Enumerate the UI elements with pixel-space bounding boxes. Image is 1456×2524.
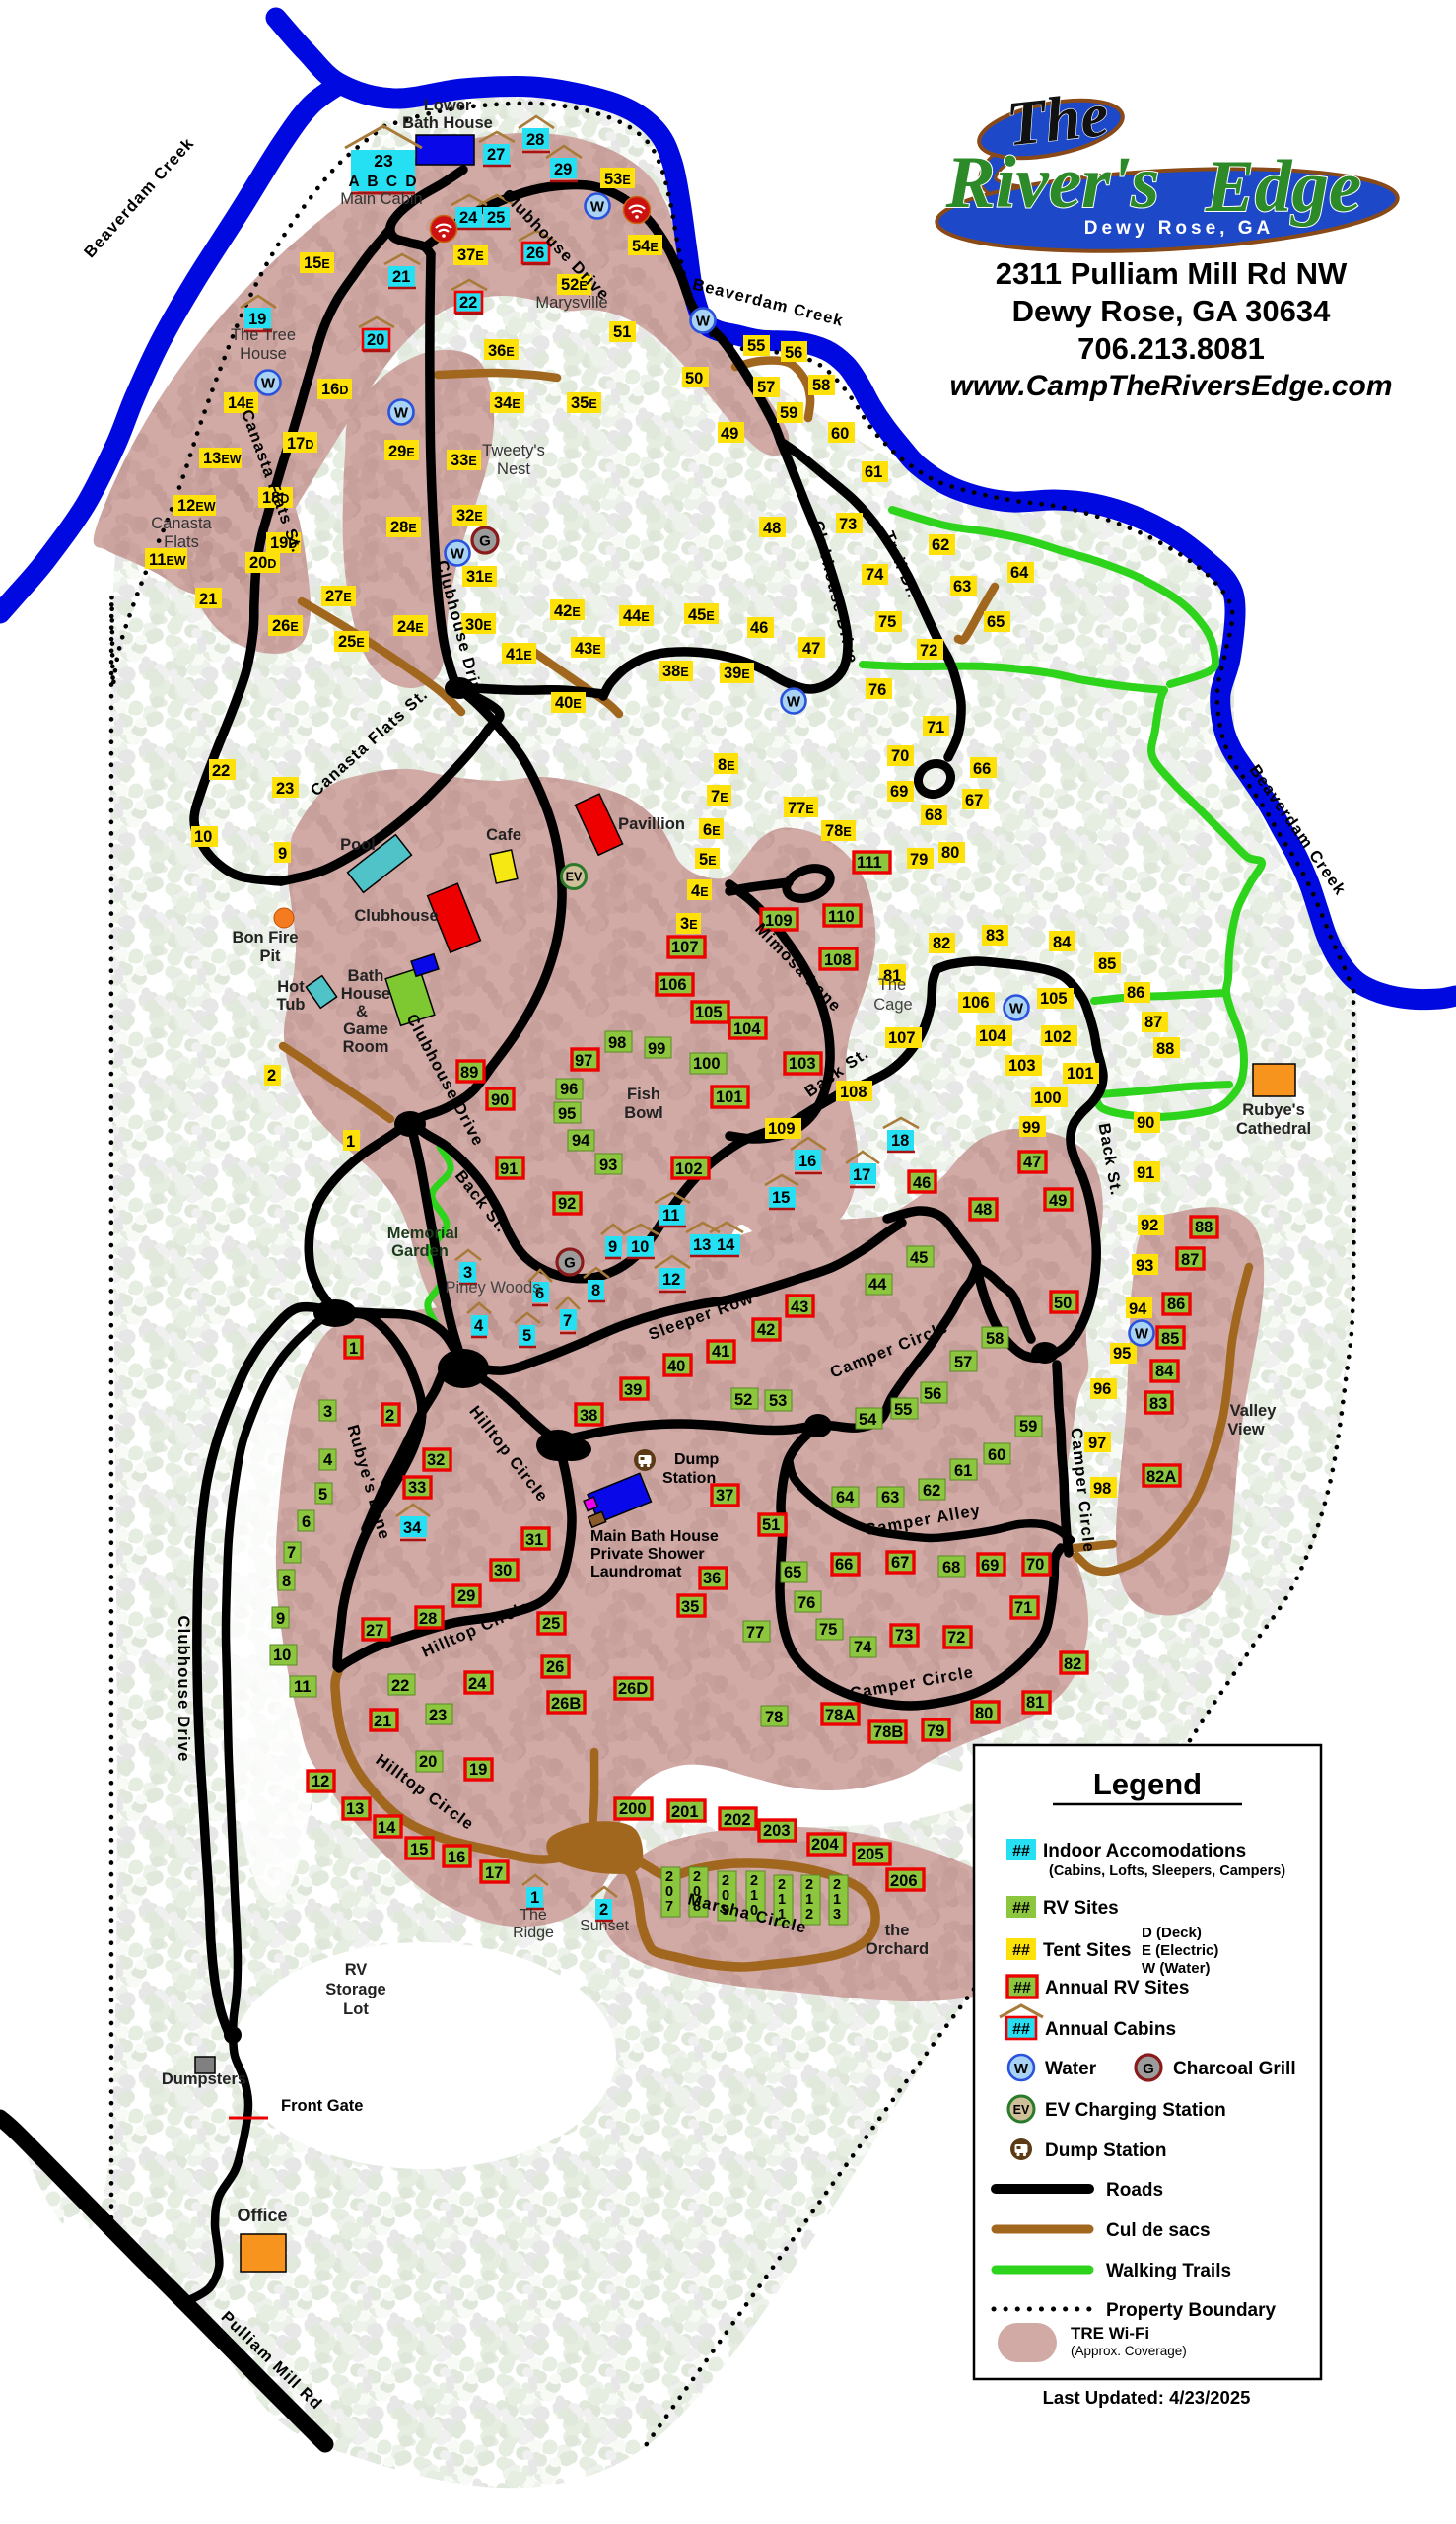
svg-text:66: 66 — [835, 1556, 853, 1574]
svg-text:44: 44 — [868, 1276, 887, 1294]
svg-text:60: 60 — [988, 1446, 1005, 1464]
svg-text:15: 15 — [410, 1841, 428, 1858]
svg-text:72: 72 — [920, 642, 937, 660]
svg-text:Ridge: Ridge — [513, 1925, 554, 1941]
svg-text:81: 81 — [1026, 1694, 1044, 1712]
svg-text:W: W — [787, 694, 801, 711]
svg-text:30: 30 — [494, 1562, 512, 1579]
svg-text:Pavillion: Pavillion — [618, 815, 685, 833]
svg-text:74: 74 — [854, 1639, 872, 1656]
svg-text:16D: 16D — [321, 381, 348, 398]
svg-text:5: 5 — [318, 1486, 327, 1504]
svg-text:G: G — [564, 1255, 576, 1272]
svg-text:92: 92 — [1141, 1217, 1158, 1234]
svg-text:47: 47 — [802, 640, 820, 658]
svg-text:Charcoal Grill: Charcoal Grill — [1173, 2059, 1296, 2079]
svg-text:2: 2 — [833, 1877, 841, 1893]
svg-text:40: 40 — [667, 1358, 685, 1375]
svg-text:12: 12 — [312, 1773, 329, 1790]
svg-text:11: 11 — [662, 1207, 679, 1225]
svg-text:73: 73 — [839, 516, 857, 533]
svg-text:108: 108 — [824, 951, 852, 969]
svg-text:200: 200 — [619, 1800, 647, 1818]
svg-text:2: 2 — [385, 1407, 394, 1425]
svg-text:20: 20 — [367, 331, 384, 349]
svg-text:102: 102 — [1044, 1028, 1072, 1046]
svg-text:202: 202 — [724, 1811, 751, 1829]
svg-text:82: 82 — [933, 935, 950, 952]
svg-text:2: 2 — [665, 1869, 673, 1885]
svg-text:Bath House: Bath House — [402, 114, 493, 132]
svg-text:44E: 44E — [623, 607, 650, 625]
svg-text:32E: 32E — [456, 507, 483, 525]
svg-text:67: 67 — [965, 792, 983, 809]
svg-text:23: 23 — [429, 1707, 447, 1724]
svg-text:102: 102 — [675, 1160, 703, 1178]
svg-text:68: 68 — [925, 806, 942, 824]
svg-text:71: 71 — [927, 719, 944, 736]
svg-text:2311 Pulliam Mill Rd NW: 2311 Pulliam Mill Rd NW — [996, 256, 1348, 291]
svg-text:85: 85 — [1161, 1330, 1179, 1348]
svg-text:54: 54 — [859, 1411, 877, 1429]
svg-text:G: G — [479, 533, 491, 550]
svg-text:105: 105 — [1040, 990, 1068, 1008]
svg-text:Dump: Dump — [674, 1451, 720, 1468]
svg-text:1: 1 — [349, 1340, 358, 1358]
svg-text:7E: 7E — [711, 788, 728, 806]
svg-text:27E: 27E — [325, 588, 352, 605]
svg-text:26: 26 — [546, 1658, 564, 1676]
svg-text:32: 32 — [427, 1451, 445, 1469]
svg-text:##: ## — [1012, 1900, 1030, 1917]
svg-text:View: View — [1227, 1421, 1264, 1438]
svg-text:23: 23 — [374, 151, 393, 171]
svg-text:Nest: Nest — [497, 460, 530, 478]
svg-text:87: 87 — [1181, 1251, 1199, 1269]
svg-text:54E: 54E — [632, 238, 659, 255]
svg-text:84: 84 — [1155, 1363, 1174, 1380]
svg-text:Game: Game — [343, 1020, 388, 1038]
svg-text:34E: 34E — [494, 394, 520, 412]
svg-text:62: 62 — [932, 536, 949, 554]
svg-text:89: 89 — [460, 1064, 478, 1082]
svg-text:70: 70 — [1026, 1556, 1044, 1574]
svg-text:82A: 82A — [1146, 1468, 1176, 1486]
svg-text:Lower: Lower — [424, 97, 472, 114]
svg-text:##: ## — [1012, 1942, 1030, 1959]
svg-text:15E: 15E — [304, 254, 330, 272]
svg-text:57: 57 — [757, 379, 775, 396]
svg-text:18: 18 — [891, 1132, 909, 1150]
svg-text:98: 98 — [1093, 1480, 1111, 1498]
svg-text:33: 33 — [408, 1479, 426, 1497]
svg-text:78: 78 — [765, 1709, 783, 1726]
svg-text:House: House — [341, 985, 390, 1003]
svg-text:96: 96 — [560, 1081, 578, 1098]
svg-text:73: 73 — [895, 1627, 913, 1645]
svg-text:108: 108 — [840, 1084, 867, 1101]
svg-text:12: 12 — [662, 1271, 680, 1289]
svg-text:Laundromat: Laundromat — [590, 1564, 682, 1580]
svg-text:82: 82 — [1064, 1655, 1081, 1673]
svg-text:Memorial: Memorial — [387, 1225, 458, 1242]
svg-text:Main Bath House: Main Bath House — [590, 1528, 719, 1545]
svg-text:Piney Woods: Piney Woods — [446, 1279, 541, 1297]
svg-text:21: 21 — [374, 1713, 391, 1730]
svg-text:45: 45 — [910, 1249, 928, 1267]
svg-text:66: 66 — [973, 760, 991, 778]
svg-text:41E: 41E — [506, 646, 532, 664]
svg-text:56: 56 — [785, 344, 802, 362]
svg-text:26D: 26D — [618, 1680, 648, 1698]
svg-text:26E: 26E — [272, 617, 299, 635]
svg-text:2: 2 — [267, 1067, 276, 1085]
svg-text:39E: 39E — [724, 665, 750, 682]
svg-text:21: 21 — [392, 268, 410, 286]
svg-text:Cul de sacs: Cul de sacs — [1106, 2220, 1211, 2241]
svg-text:64: 64 — [1010, 564, 1029, 582]
svg-text:&: & — [356, 1003, 368, 1020]
svg-text:W: W — [394, 405, 409, 422]
svg-text:28: 28 — [419, 1610, 437, 1628]
svg-text:61: 61 — [865, 463, 882, 481]
svg-text:D (Deck): D (Deck) — [1142, 1925, 1202, 1941]
svg-text:74: 74 — [866, 566, 884, 584]
svg-text:79: 79 — [927, 1722, 944, 1740]
svg-text:46: 46 — [750, 619, 768, 637]
svg-text:Office: Office — [237, 2206, 287, 2225]
svg-text:W: W — [1009, 1001, 1024, 1017]
svg-text:36E: 36E — [488, 342, 515, 360]
svg-text:Last Updated: 4/23/2025: Last Updated: 4/23/2025 — [1043, 2387, 1251, 2408]
svg-text:68: 68 — [942, 1559, 960, 1577]
svg-text:Rubye's: Rubye's — [1242, 1101, 1305, 1119]
svg-text:67: 67 — [891, 1554, 909, 1572]
svg-text:Dumpsters: Dumpsters — [162, 2070, 246, 2088]
svg-text:Bowl: Bowl — [624, 1104, 662, 1122]
svg-text:Annual Cabins: Annual Cabins — [1045, 2019, 1176, 2040]
svg-text:0: 0 — [665, 1884, 673, 1900]
svg-text:The Tree: The Tree — [231, 326, 296, 344]
svg-text:49: 49 — [1049, 1192, 1067, 1210]
svg-text:14: 14 — [717, 1236, 735, 1254]
svg-text:100: 100 — [1034, 1089, 1062, 1107]
svg-text:25: 25 — [542, 1615, 560, 1633]
svg-text:3E: 3E — [680, 915, 698, 933]
svg-text:1: 1 — [750, 1888, 758, 1904]
svg-text:G: G — [1143, 2061, 1154, 2077]
svg-text:7: 7 — [287, 1544, 296, 1562]
svg-text:86: 86 — [1127, 984, 1144, 1002]
svg-text:Cafe: Cafe — [486, 826, 521, 844]
svg-text:Tub: Tub — [276, 996, 305, 1014]
svg-text:33E: 33E — [451, 452, 477, 469]
svg-text:75: 75 — [878, 613, 896, 631]
svg-text:50: 50 — [1054, 1295, 1072, 1312]
svg-text:99: 99 — [648, 1040, 665, 1058]
svg-text:61: 61 — [954, 1462, 972, 1480]
svg-text:35: 35 — [681, 1598, 699, 1616]
svg-text:69: 69 — [981, 1557, 999, 1575]
svg-text:93: 93 — [1136, 1257, 1153, 1275]
svg-text:70: 70 — [891, 747, 909, 765]
svg-text:50: 50 — [685, 370, 703, 387]
svg-text:78A: 78A — [825, 1707, 855, 1724]
svg-text:28: 28 — [526, 131, 544, 149]
svg-text:43: 43 — [791, 1298, 808, 1316]
svg-text:Legend: Legend — [1093, 1767, 1202, 1801]
svg-text:63: 63 — [953, 578, 971, 596]
svg-text:60: 60 — [831, 425, 849, 443]
svg-text:EV Charging Station: EV Charging Station — [1045, 2100, 1226, 2121]
svg-text:55: 55 — [747, 337, 765, 355]
svg-text:78B: 78B — [873, 1723, 903, 1741]
svg-text:92: 92 — [558, 1195, 576, 1213]
svg-text:Property Boundary: Property Boundary — [1106, 2300, 1277, 2321]
svg-text:59: 59 — [1019, 1418, 1037, 1436]
svg-text:100: 100 — [693, 1055, 721, 1073]
svg-text:Orchard: Orchard — [866, 1940, 929, 1958]
svg-text:Canasta: Canasta — [151, 515, 212, 532]
svg-text:Garden: Garden — [391, 1242, 449, 1260]
svg-text:97: 97 — [1088, 1435, 1106, 1452]
svg-text:107: 107 — [888, 1029, 916, 1047]
svg-text:Dump Station: Dump Station — [1045, 2140, 1167, 2161]
svg-text:75: 75 — [819, 1621, 837, 1639]
svg-text:20D: 20D — [249, 554, 276, 572]
svg-text:51: 51 — [762, 1516, 780, 1534]
svg-text:The: The — [520, 1907, 547, 1924]
svg-text:46: 46 — [913, 1174, 931, 1192]
svg-text:20: 20 — [419, 1753, 437, 1771]
svg-text:78E: 78E — [825, 822, 852, 840]
svg-text:101: 101 — [716, 1088, 743, 1106]
svg-text:W: W — [590, 199, 605, 216]
svg-text:21: 21 — [199, 591, 217, 608]
svg-text:Tent Sites: Tent Sites — [1043, 1940, 1131, 1961]
svg-text:www.CampTheRiversEdge.com: www.CampTheRiversEdge.com — [949, 370, 1392, 402]
svg-text:103: 103 — [789, 1055, 816, 1073]
svg-text:34: 34 — [403, 1519, 422, 1537]
svg-text:38: 38 — [580, 1407, 597, 1425]
svg-text:Indoor Accomodations: Indoor Accomodations — [1043, 1841, 1246, 1861]
svg-text:17D: 17D — [287, 435, 313, 453]
svg-text:35E: 35E — [571, 394, 597, 412]
svg-text:63: 63 — [881, 1489, 899, 1507]
svg-text:24: 24 — [468, 1675, 487, 1693]
svg-text:Main Cabin: Main Cabin — [340, 190, 422, 208]
svg-text:22: 22 — [391, 1677, 409, 1695]
svg-text:201: 201 — [671, 1803, 699, 1821]
svg-text:27: 27 — [487, 146, 505, 164]
svg-text:24: 24 — [459, 209, 478, 227]
svg-text:83: 83 — [986, 927, 1004, 945]
svg-text:105: 105 — [695, 1004, 723, 1021]
svg-text:53E: 53E — [604, 171, 631, 188]
svg-text:48: 48 — [763, 520, 781, 537]
svg-text:88: 88 — [1195, 1219, 1213, 1236]
svg-text:26B: 26B — [551, 1695, 581, 1713]
svg-text:4: 4 — [323, 1451, 333, 1469]
svg-text:87: 87 — [1144, 1014, 1162, 1031]
svg-text:58: 58 — [986, 1330, 1004, 1348]
svg-text:22: 22 — [212, 762, 230, 780]
svg-text:17: 17 — [485, 1864, 503, 1882]
svg-text:45E: 45E — [688, 606, 715, 624]
svg-text:13: 13 — [693, 1236, 711, 1254]
svg-text:##: ## — [1012, 2021, 1030, 2038]
svg-text:Valley: Valley — [1230, 1402, 1278, 1420]
svg-text:29E: 29E — [388, 443, 415, 460]
svg-text:7: 7 — [563, 1312, 572, 1330]
svg-text:104: 104 — [733, 1020, 761, 1038]
svg-text:85: 85 — [1098, 955, 1116, 973]
svg-text:95: 95 — [558, 1105, 576, 1123]
svg-text:11EW: 11EW — [149, 551, 186, 569]
svg-text:104: 104 — [979, 1027, 1006, 1045]
svg-text:94: 94 — [1129, 1300, 1147, 1318]
svg-text:17: 17 — [853, 1166, 870, 1184]
svg-text:80: 80 — [941, 844, 959, 862]
svg-text:47: 47 — [1023, 1154, 1041, 1171]
svg-text:1: 1 — [778, 1892, 786, 1908]
svg-text:95: 95 — [1113, 1345, 1131, 1363]
svg-text:Marysville: Marysville — [535, 294, 607, 312]
svg-text:62: 62 — [923, 1482, 940, 1500]
svg-text:Annual RV Sites: Annual RV Sites — [1045, 1978, 1189, 1998]
svg-text:E (Electric): E (Electric) — [1142, 1942, 1218, 1959]
svg-text:8E: 8E — [718, 756, 735, 774]
svg-text:37: 37 — [716, 1487, 733, 1505]
svg-text:2: 2 — [805, 1877, 813, 1893]
svg-text:204: 204 — [811, 1836, 839, 1854]
svg-text:86: 86 — [1167, 1296, 1185, 1313]
svg-text:29: 29 — [554, 161, 572, 178]
svg-text:206: 206 — [890, 1872, 918, 1890]
svg-text:RV Sites: RV Sites — [1043, 1898, 1119, 1919]
svg-text:59: 59 — [780, 404, 797, 422]
svg-text:W: W — [261, 376, 276, 392]
svg-text:107: 107 — [671, 939, 699, 956]
svg-text:A B C D: A B C D — [348, 174, 418, 190]
svg-text:1: 1 — [805, 1892, 813, 1908]
svg-text:48: 48 — [974, 1201, 992, 1219]
svg-text:106: 106 — [659, 976, 687, 994]
svg-text:W: W — [451, 546, 465, 563]
svg-text:Hot: Hot — [277, 978, 305, 996]
svg-text:205: 205 — [857, 1846, 884, 1863]
svg-text:the: the — [885, 1922, 910, 1939]
svg-text:64: 64 — [836, 1489, 855, 1507]
svg-text:16: 16 — [448, 1849, 465, 1866]
svg-text:(Approx. Coverage): (Approx. Coverage) — [1071, 2344, 1187, 2358]
svg-text:Clubhouse Drive: Clubhouse Drive — [174, 1615, 192, 1762]
svg-text:76: 76 — [868, 681, 886, 699]
svg-text:76: 76 — [797, 1594, 815, 1612]
svg-text:4E: 4E — [691, 882, 709, 900]
svg-text:Pool: Pool — [340, 836, 376, 854]
svg-text:106: 106 — [962, 994, 990, 1012]
svg-text:Bon Fire: Bon Fire — [233, 929, 299, 946]
svg-text:W (Water): W (Water) — [1142, 1960, 1210, 1977]
svg-text:79: 79 — [910, 851, 928, 869]
svg-text:38E: 38E — [662, 663, 689, 680]
svg-text:25: 25 — [487, 209, 505, 227]
svg-text:Room: Room — [343, 1038, 389, 1056]
svg-text:2: 2 — [693, 1869, 701, 1885]
svg-text:Front Gate: Front Gate — [281, 2097, 363, 2115]
svg-text:##: ## — [1012, 1843, 1030, 1859]
svg-text:16: 16 — [798, 1153, 816, 1170]
svg-text:41: 41 — [712, 1343, 729, 1361]
svg-text:Sunset: Sunset — [580, 1918, 629, 1934]
svg-text:77E: 77E — [788, 800, 814, 817]
svg-text:15: 15 — [772, 1189, 790, 1207]
svg-text:49: 49 — [721, 425, 738, 443]
svg-text:1: 1 — [833, 1892, 841, 1908]
svg-text:12EW: 12EW — [177, 497, 216, 515]
svg-text:Storage: Storage — [325, 1981, 385, 1998]
svg-text:98: 98 — [608, 1034, 626, 1052]
svg-text:65: 65 — [987, 613, 1005, 631]
svg-text:TRE Wi-Fi: TRE Wi-Fi — [1071, 2324, 1149, 2343]
svg-text:9: 9 — [608, 1238, 617, 1256]
svg-text:706.213.8081: 706.213.8081 — [1077, 331, 1265, 366]
svg-text:40E: 40E — [555, 694, 582, 712]
svg-text:1: 1 — [530, 1889, 539, 1907]
svg-text:13: 13 — [346, 1800, 364, 1818]
svg-text:5E: 5E — [699, 851, 717, 869]
svg-text:2: 2 — [750, 1873, 758, 1889]
svg-text:69: 69 — [890, 783, 908, 801]
svg-text:Flats: Flats — [164, 533, 199, 551]
svg-text:Cathedral: Cathedral — [1236, 1120, 1311, 1138]
svg-text:8: 8 — [282, 1573, 291, 1590]
svg-text:72: 72 — [947, 1629, 965, 1647]
svg-text:6E: 6E — [703, 821, 721, 839]
svg-text:Dewy Rose, GA: Dewy Rose, GA — [1084, 218, 1274, 239]
svg-text:80: 80 — [975, 1705, 993, 1722]
svg-text:101: 101 — [1067, 1065, 1094, 1083]
svg-text:58: 58 — [812, 377, 830, 394]
svg-text:91: 91 — [500, 1160, 518, 1178]
svg-text:The: The — [878, 976, 906, 994]
svg-text:36: 36 — [703, 1570, 721, 1587]
svg-text:37E: 37E — [457, 246, 484, 264]
svg-text:EV: EV — [566, 871, 583, 884]
svg-text:71: 71 — [1014, 1599, 1032, 1617]
svg-text:Lot: Lot — [343, 2000, 369, 2018]
svg-text:91: 91 — [1137, 1164, 1154, 1182]
svg-text:2: 2 — [722, 1873, 729, 1889]
svg-text:House: House — [240, 345, 287, 363]
svg-text:39: 39 — [624, 1381, 642, 1399]
svg-text:Tweety's: Tweety's — [482, 442, 545, 459]
svg-text:3: 3 — [323, 1403, 332, 1421]
svg-text:22: 22 — [459, 294, 477, 312]
svg-text:9: 9 — [278, 845, 287, 863]
svg-text:42E: 42E — [554, 602, 581, 620]
svg-text:109: 109 — [768, 1120, 796, 1138]
svg-text:Roads: Roads — [1106, 2180, 1163, 2201]
svg-text:31E: 31E — [466, 568, 493, 586]
svg-text:65: 65 — [784, 1564, 801, 1581]
svg-text:90: 90 — [491, 1091, 509, 1109]
svg-text:7: 7 — [665, 1899, 673, 1915]
svg-text:9: 9 — [276, 1610, 285, 1628]
svg-text:27: 27 — [366, 1622, 383, 1640]
svg-text:Water: Water — [1045, 2059, 1097, 2079]
